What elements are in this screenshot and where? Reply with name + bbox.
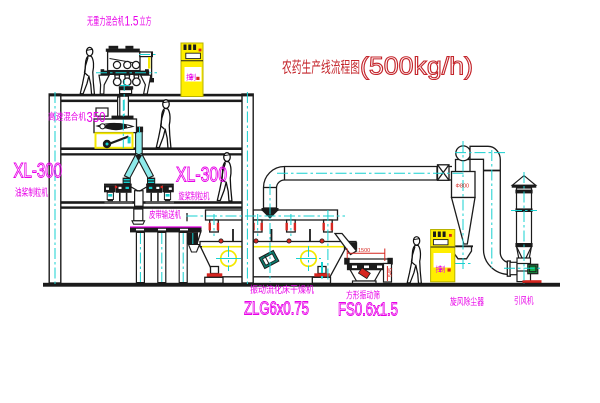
svg-text:(500kg/h): (500kg/h) bbox=[360, 53, 473, 81]
svg-text:无重力混合机: 无重力混合机 bbox=[87, 15, 124, 28]
svg-text:控制: 控制 bbox=[436, 265, 446, 274]
svg-text:高速混合机: 高速混合机 bbox=[48, 111, 86, 123]
svg-text:立方: 立方 bbox=[140, 15, 152, 28]
svg-text:油桨制粒机: 油桨制粒机 bbox=[15, 186, 48, 199]
svg-text:1500: 1500 bbox=[358, 248, 370, 254]
svg-text:FS0.6x1.5: FS0.6x1.5 bbox=[338, 299, 398, 320]
svg-text:皮带输送机: 皮带输送机 bbox=[149, 209, 181, 221]
svg-text:350: 350 bbox=[87, 110, 106, 126]
svg-text:农药生产线流程图: 农药生产线流程图 bbox=[282, 59, 360, 77]
svg-text:545: 545 bbox=[388, 268, 394, 277]
svg-text:引风机: 引风机 bbox=[514, 295, 534, 307]
svg-text:Φ800: Φ800 bbox=[456, 184, 470, 190]
svg-text:振动流化床干燥机: 振动流化床干燥机 bbox=[250, 284, 314, 296]
svg-text:1.5: 1.5 bbox=[125, 12, 139, 28]
svg-text:控制: 控制 bbox=[186, 73, 196, 82]
svg-text:XL-300: XL-300 bbox=[176, 164, 227, 187]
svg-text:ZLG6x0.75: ZLG6x0.75 bbox=[244, 299, 309, 319]
svg-text:旋桨制粒机: 旋桨制粒机 bbox=[179, 191, 210, 203]
svg-text:旋风除尘器: 旋风除尘器 bbox=[450, 296, 484, 308]
svg-text:XL-300: XL-300 bbox=[14, 160, 63, 183]
